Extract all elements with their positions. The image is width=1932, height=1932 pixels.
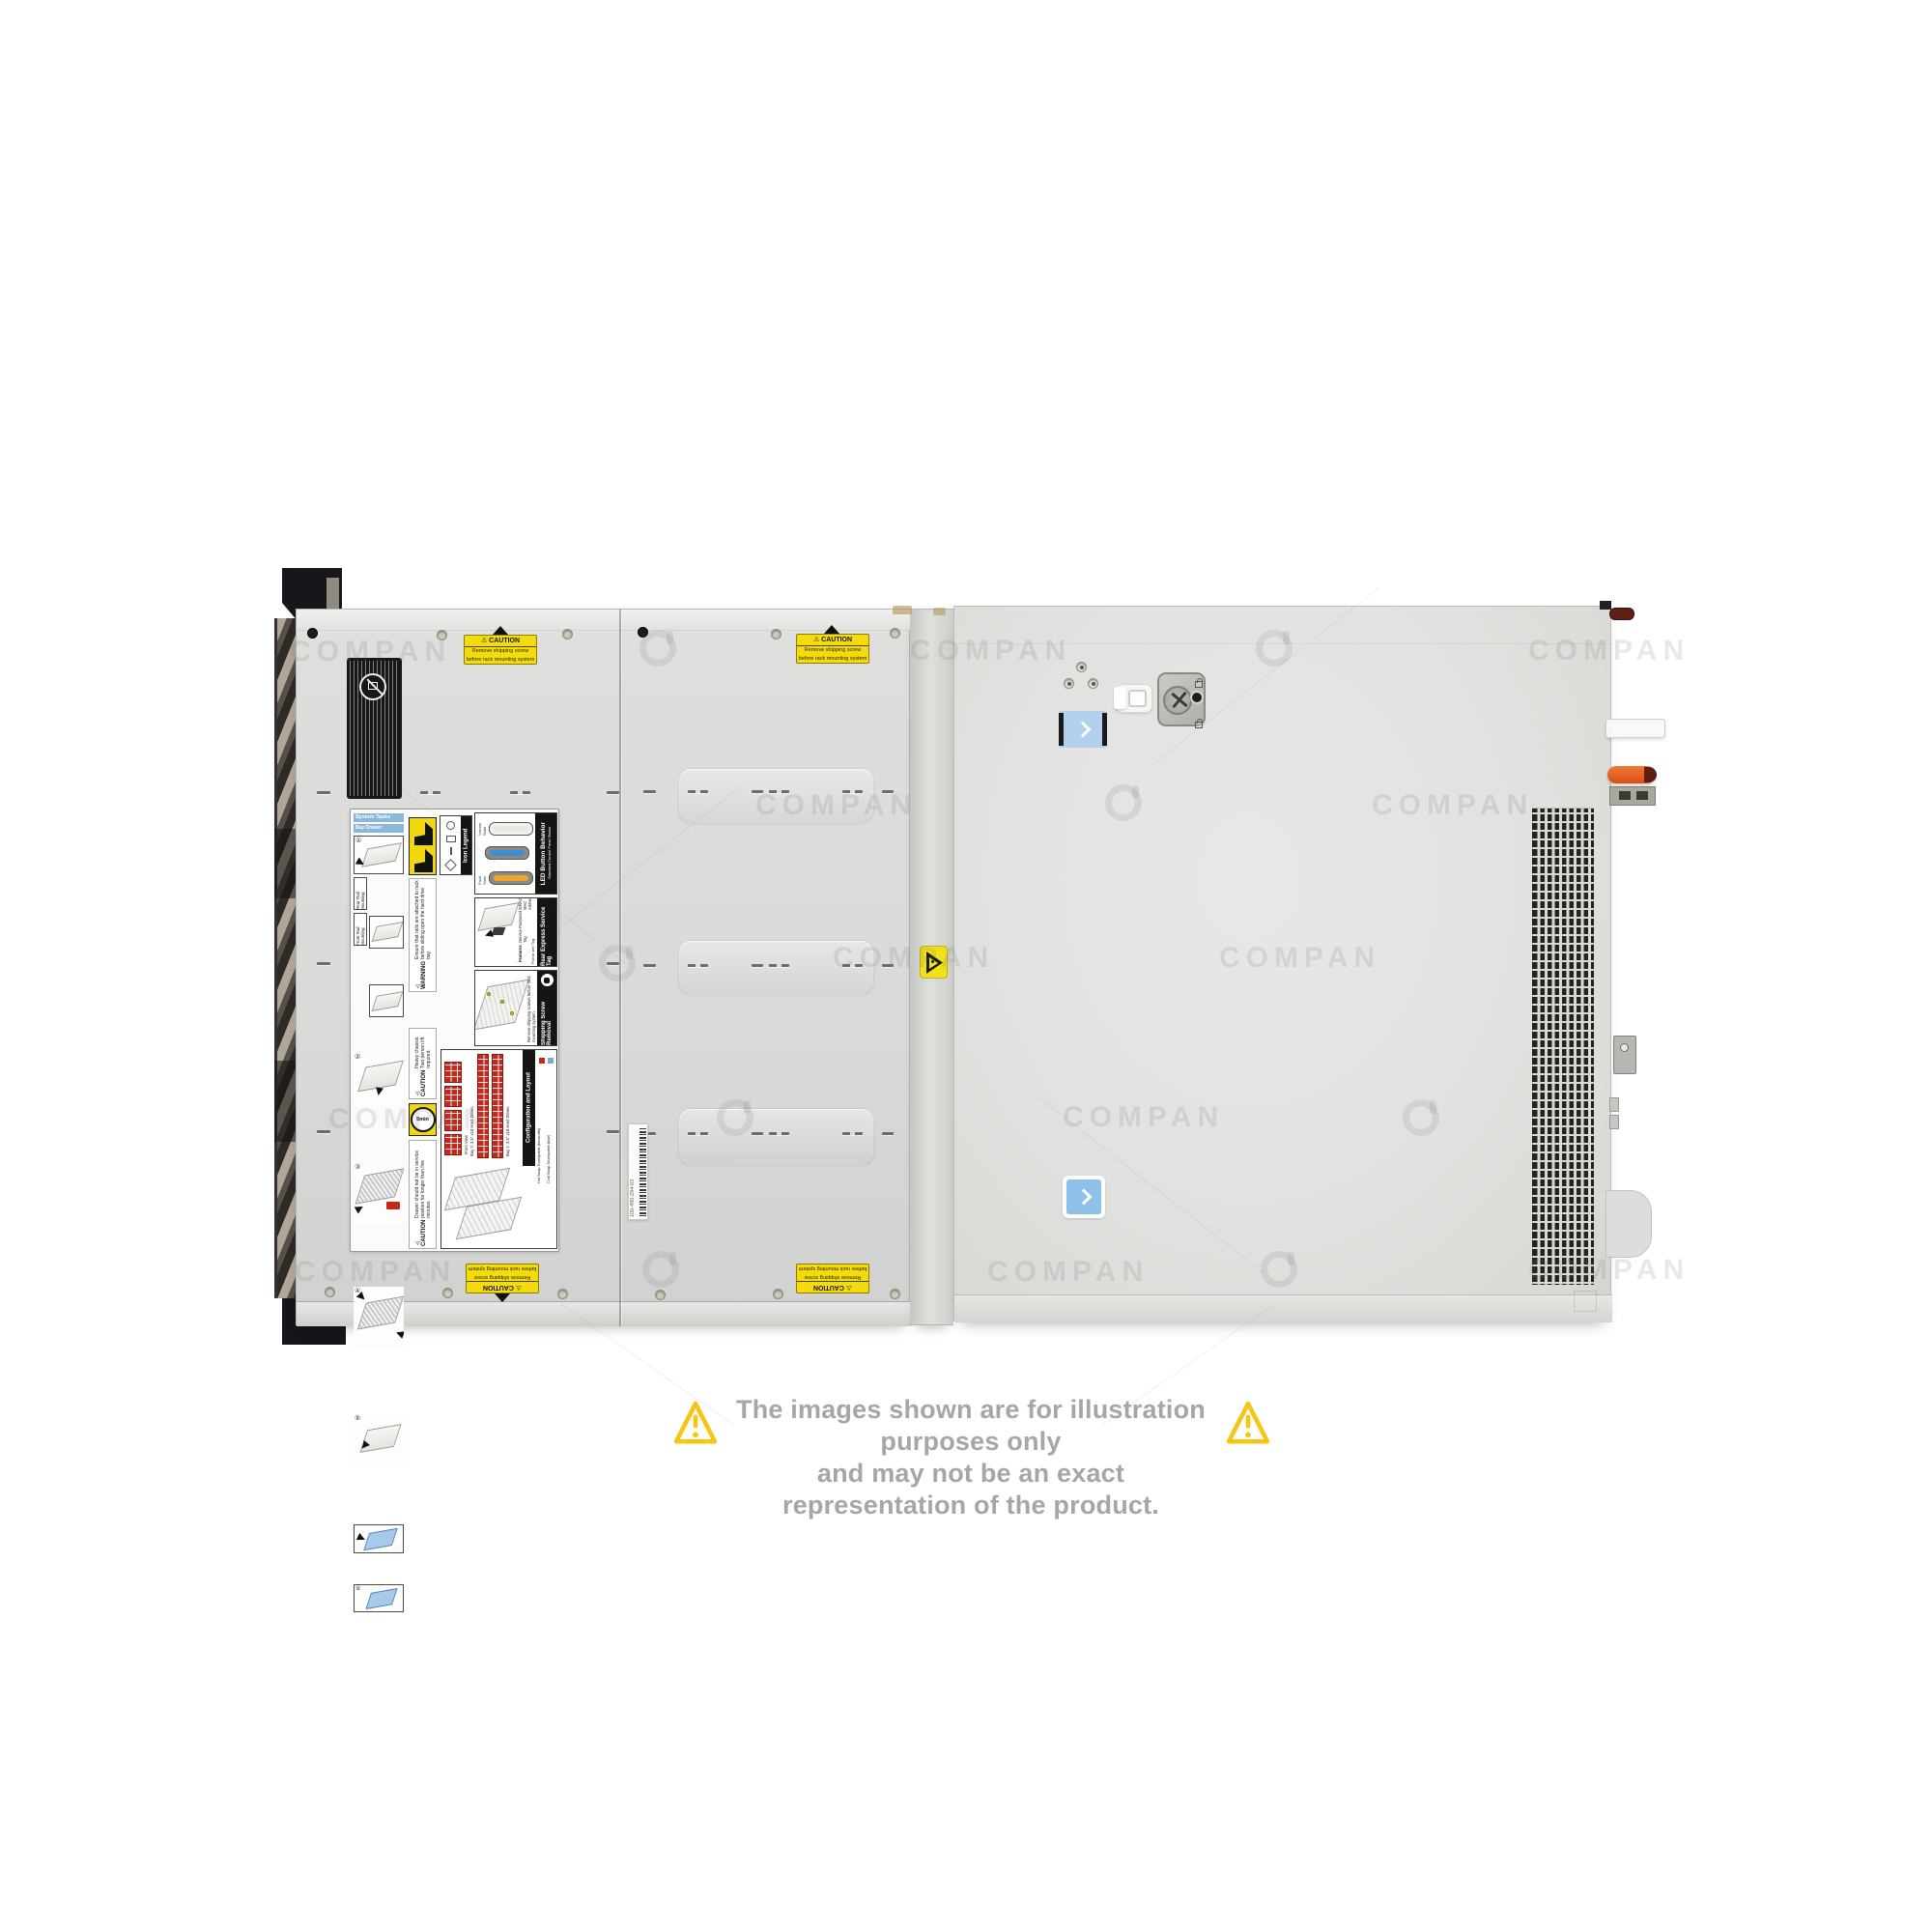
bay-map-table [444,1110,462,1131]
screw-hole [562,629,573,639]
caution-sticker: ⚠ CAUTION Remove shipping screw before r… [464,635,537,665]
vent-slot [882,790,894,793]
fault-state-label: Fault State [477,871,487,885]
shipping-screw-text: Remove shipping screws before rack mount… [526,975,536,1042]
vent-slot-pair [769,1132,789,1135]
activity-icon [444,859,457,871]
warning-icon: ⚠ [846,1284,852,1291]
bay-map-table-tall [492,1054,503,1158]
vent-slot [607,1130,619,1133]
screw-marker [487,992,491,996]
rear-rail-box: Rear Rail Mounting [354,877,367,910]
tip-hazard-pictogram [414,822,433,845]
led-normal [489,822,533,836]
bay-map-table-tall [477,1054,489,1158]
pointer-triangle [493,626,508,635]
vent-slot-pair [510,791,530,794]
vent-slot-pair [842,964,863,967]
regulatory-label [347,658,402,799]
tip-hazard-pictogram [414,849,433,872]
screw-dot [1067,682,1071,686]
diagram-service-blue-2: ⑥ [354,1584,404,1612]
screw-hole [773,1289,783,1299]
normal-state-label: Normal State [477,822,487,836]
caution-heavy-block: ⚠ CAUTION Heavy chassis. Two person lift… [409,1028,437,1099]
vent-slot [752,964,763,967]
idrac-icon [446,836,456,842]
screw-hole [325,1287,335,1297]
latch-clip [1613,1036,1636,1074]
release-handle-tip [1644,767,1657,782]
lid-seam [619,610,621,1326]
vent-slot [607,962,619,965]
vent-slot-pair [842,790,863,793]
screw-hole [890,628,900,639]
chevron-right-icon [1075,722,1092,738]
diagram-service-blue-1 [354,1524,404,1553]
tag-pull [492,927,506,935]
warning-icon: ⚠ [516,1284,522,1291]
screw-hole [655,1290,666,1300]
five-min-text: 5min [416,1117,429,1122]
vent-slot [643,790,656,793]
rear-express-tag-box: Pull to see Tag Features: Service Tag Pa… [474,897,557,967]
system-id-icon [446,821,455,830]
warning-triangle-sticker [920,946,948,979]
hot-swap-square [539,1058,545,1064]
warning-triangle-icon [1226,1398,1270,1448]
usb-icon [450,847,452,855]
vent-slot [317,791,330,794]
vent-slot [882,964,894,967]
bay1-label: Bay 1: 3.5" x18 Hard Drives [505,1056,510,1156]
blue-latch-sticker [1059,711,1107,748]
vent-grid [1532,808,1594,1285]
shipping-screw-box: Remove shipping screws before rack mount… [474,970,557,1046]
screw-hole [771,629,781,639]
server-top-view: 100-490-294-03 ⚠ CAUTION Remove shipping… [0,0,1932,1932]
vent-slot-pair [688,964,708,967]
caution-sticker: ⚠ CAUTION Remove shipping screw before r… [466,1264,539,1293]
clear-pull-tab [1605,719,1665,738]
cold-swap-label: Cold Swap Touchpoints (blue) [547,1067,551,1183]
handle-bracket [1609,786,1656,806]
led-blue [485,846,529,860]
diagram-rail-1: ① [354,836,404,874]
vent-slot [643,964,656,967]
shipping-screw-header: Shipping Screw Removal [537,971,556,1045]
chassis-illustration [474,980,529,1031]
bay-map-table [444,1086,462,1107]
screw-hole [437,630,447,640]
cold-swap-square [548,1058,554,1064]
sticker-bracket [1059,713,1064,746]
icon-legend-header: Icon Legend [461,816,471,874]
barcode-number: 100-490-294-03 [630,1128,636,1217]
vent-slot-pair [688,790,708,793]
latch-clip-hole [1620,1043,1629,1052]
warning-icon: ⚠ [813,637,819,643]
caution-sticker: ⚠ CAUTION Remove shipping screw before r… [796,1264,869,1293]
caution-drawer-text: Drawer should not be in service position… [414,1141,432,1218]
lid-recess [678,768,874,823]
instruction-label: System Tasks Bay Drawer Operation ① Rear… [350,809,559,1252]
vent-slot-pair [769,964,789,967]
bay2-label: Bay 2: 3.5" x18 Hard Drives [469,1056,474,1156]
vent-slot-pair [688,1132,708,1135]
tip-hazard-box [409,817,437,875]
barcode-stripes [639,1128,646,1217]
latch-button-lip [1114,687,1126,709]
cover-side-tab [1605,1190,1652,1258]
rear-express-tag-header: Rear Express Service Tag [537,898,556,966]
top-rim [297,610,911,631]
vent-slot [752,1132,763,1135]
handle-bracket-slot [1619,791,1631,800]
product-photo-page: { "watermark": { "text": "COMPAN" }, "gl… [0,0,1932,1932]
tape-residue [893,606,912,614]
caution-title: ⚠ CAUTION [414,1220,432,1246]
led-fault [489,871,533,885]
key-lock-plate [1157,672,1206,726]
lid-recess [678,940,874,995]
screw-dot [1080,666,1084,669]
diagram-drawer-3: ④ [354,1287,404,1349]
disclaimer-text: The images shown are for illustration pu… [724,1394,1217,1521]
configuration-layout-header: Configuration and Layout [523,1050,535,1166]
blue-latch-sticker [1063,1176,1105,1218]
bay-drawer-operation-bar: Bay Drawer Operation [354,824,404,833]
warning-icon: ⚠ [481,638,487,644]
bay-map-table [444,1062,462,1083]
pointer-triangle [824,625,839,634]
caution-drawer-block: ⚠ CAUTION Drawer should not be in servic… [409,1140,437,1249]
disclaimer-block: The images shown are for illustration pu… [0,1394,1932,1462]
lid-recess [678,1108,874,1166]
diagram-rail-3 [369,984,404,1017]
diagram-drawer-1: ② [354,1053,404,1107]
vent-slot [317,962,330,965]
caution-heavy-text: Heavy chassis. Two person lift required. [414,1029,432,1068]
side-tab [1609,1097,1619,1112]
no-stack-icon-box [368,682,378,690]
shipping-screw [1609,608,1634,620]
system-tasks-bar: System Tasks [354,813,404,822]
warning-triangle-sticker-dot [931,960,934,963]
sticker-bracket [1102,713,1107,746]
diagram-rail-2 [369,916,404,949]
icon-legend-box: Icon Legend [440,815,472,875]
warning-triangle-icon [673,1398,718,1448]
lock-keyhole [1192,693,1202,702]
screw [307,628,318,639]
led-behavior-header: LED Button Behavior Standard Control Pan… [535,813,556,894]
tape-residue [933,608,946,615]
front-view-label: Front View [464,1062,469,1154]
latch-button [1116,684,1152,713]
five-min-box: 5min [409,1103,437,1136]
pointer-triangle [495,1293,510,1302]
screw-marker [500,1000,504,1004]
caution-title: ⚠ CAUTION [414,1070,432,1096]
screw-hole [557,1289,568,1299]
cover-bottom-band [954,1294,1612,1322]
front-rail-label: Front Rail Mounting [355,915,365,946]
warning-title: ⚠ WARNING [414,961,432,989]
front-rail-box: Front Rail Mounting [354,913,367,946]
vent-slot [752,790,763,793]
screw-hole [890,1289,900,1299]
handle-bracket-slot [1636,791,1648,800]
cover-bend-line [954,643,1612,644]
stop-icon [540,973,554,987]
rear-rail-label: Rear Rail Mounting [355,879,365,910]
caution-sticker: ⚠ CAUTION Remove shipping screw before r… [796,634,869,664]
vent-slot [882,1132,894,1135]
side-tab [1609,1115,1619,1129]
vent-slot-pair [769,790,789,793]
top-right-screw [1600,601,1611,610]
screw-hole [442,1288,453,1298]
led-behavior-box: Normal State Fault State LED Button Beha… [474,812,557,895]
touchpoint-legend: Hot Swap Touchpoints (terracotta) Cold S… [535,1050,556,1248]
latch-button-inner [1128,690,1147,707]
clock-icon: 5min [411,1107,436,1132]
locked-icon [1195,722,1203,728]
features-list: Features: Service Tag Password iDRAC MAC… [518,902,532,962]
arrow [480,929,494,941]
vent-slot-pair [420,791,440,794]
vent-slot [607,791,619,794]
lid-right-cover [953,606,1611,1321]
configuration-layout-box: Front View Bay 2: 3.5" x18 Hard Drives B… [440,1049,557,1249]
cover-emboss-square [1574,1291,1597,1312]
screw-dot [1092,682,1095,686]
screw [638,627,648,638]
unlocked-icon [1195,681,1203,688]
screw-marker [510,1011,514,1015]
bay-map-table [444,1134,462,1155]
warning-text-block: ⚠ WARNING Ensure that rails are attached… [409,878,437,992]
vent-slot-pair [842,1132,863,1135]
vent-slot [317,1130,330,1133]
barcode-label: 100-490-294-03 [628,1123,648,1220]
hot-swap-label: Hot Swap Touchpoints (terracotta) [537,1067,541,1183]
diagram-drawer-2: ③ [354,1163,404,1223]
warning-text: Ensure that rails are attached to rack b… [414,879,432,959]
